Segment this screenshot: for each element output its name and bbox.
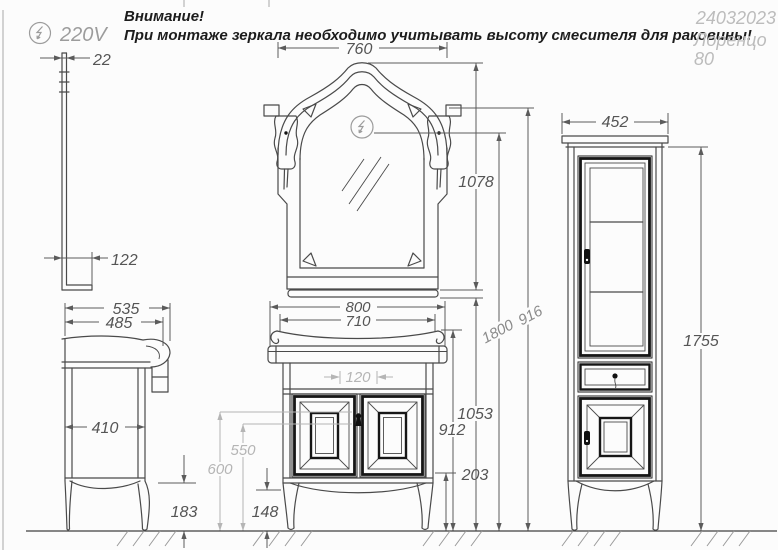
drawer-knob[interactable]	[612, 373, 617, 378]
dim-bottom-gap: 203	[461, 467, 489, 484]
dim-cabinet-width: 452	[602, 114, 629, 131]
lightning-icon	[37, 27, 43, 39]
model-name: Лоренцо	[693, 30, 767, 50]
lower-door-handle[interactable]	[584, 431, 590, 445]
dim-mirror-shelf-depth: 122	[111, 252, 138, 269]
dim-mirror-thickness: 22	[92, 52, 111, 69]
mirror-side-view: 22 122	[40, 52, 138, 290]
tall-cabinet-view: 452	[562, 113, 725, 531]
dim-mirror-width: 760	[346, 41, 373, 58]
dim-side-inner-depth: 410	[92, 420, 119, 437]
dim-keyhole-top-height: 600	[207, 461, 233, 478]
dim-mirror-shelf-height: 1053	[457, 406, 493, 423]
dim-keyhole-height: 550	[230, 442, 256, 459]
mirror-shelf	[288, 290, 438, 297]
mount-tab-right	[446, 105, 461, 116]
vanity-side-view: 535 485 410 183	[62, 300, 203, 548]
cabinet-lower-door[interactable]	[578, 396, 652, 478]
drawing-page: 220V Внимание! При монтаже зеркала необх…	[0, 0, 778, 550]
floor-line	[26, 531, 777, 546]
voltage-label: 220V	[59, 24, 108, 46]
dim-side-depth-top: 485	[106, 315, 133, 332]
glass-reflection	[349, 157, 381, 204]
dim-side-leg-height: 183	[171, 504, 198, 521]
cabinet-drawer[interactable]	[578, 362, 652, 392]
warning-text: При монтаже зеркала необходимо учитывать…	[124, 27, 752, 44]
mount-tab-left	[264, 105, 279, 116]
warning-title: Внимание!	[124, 8, 204, 25]
cabinet-glass-door[interactable]	[578, 156, 652, 358]
power-symbol: 220V	[30, 23, 109, 47]
vanity-door-right[interactable]	[360, 394, 425, 477]
keyhole-handle[interactable]	[356, 413, 362, 426]
doc-number: 24032023	[695, 8, 776, 28]
vanity-door-left[interactable]	[292, 394, 357, 477]
model-size: 80	[694, 49, 714, 69]
dim-vanity-height: 912	[439, 422, 466, 439]
outlet-lightning-icon	[359, 121, 365, 133]
title-block: 24032023 Лоренцо 80	[693, 8, 776, 69]
dim-drain-width: 120	[345, 369, 371, 386]
glass-door-handle[interactable]	[584, 249, 590, 264]
dim-mirror-height: 1078	[458, 174, 494, 191]
mirror-front-view: 760	[264, 41, 461, 297]
floor-hatching	[117, 531, 750, 546]
dim-front-leg-height: 148	[252, 504, 279, 521]
dim-cabinet-height: 1755	[683, 333, 719, 350]
warning-note: Внимание! При монтаже зеркала необходимо…	[124, 8, 752, 44]
dim-vanity-body-width: 710	[345, 313, 371, 330]
technical-drawing: 220V Внимание! При монтаже зеркала необх…	[0, 0, 778, 550]
